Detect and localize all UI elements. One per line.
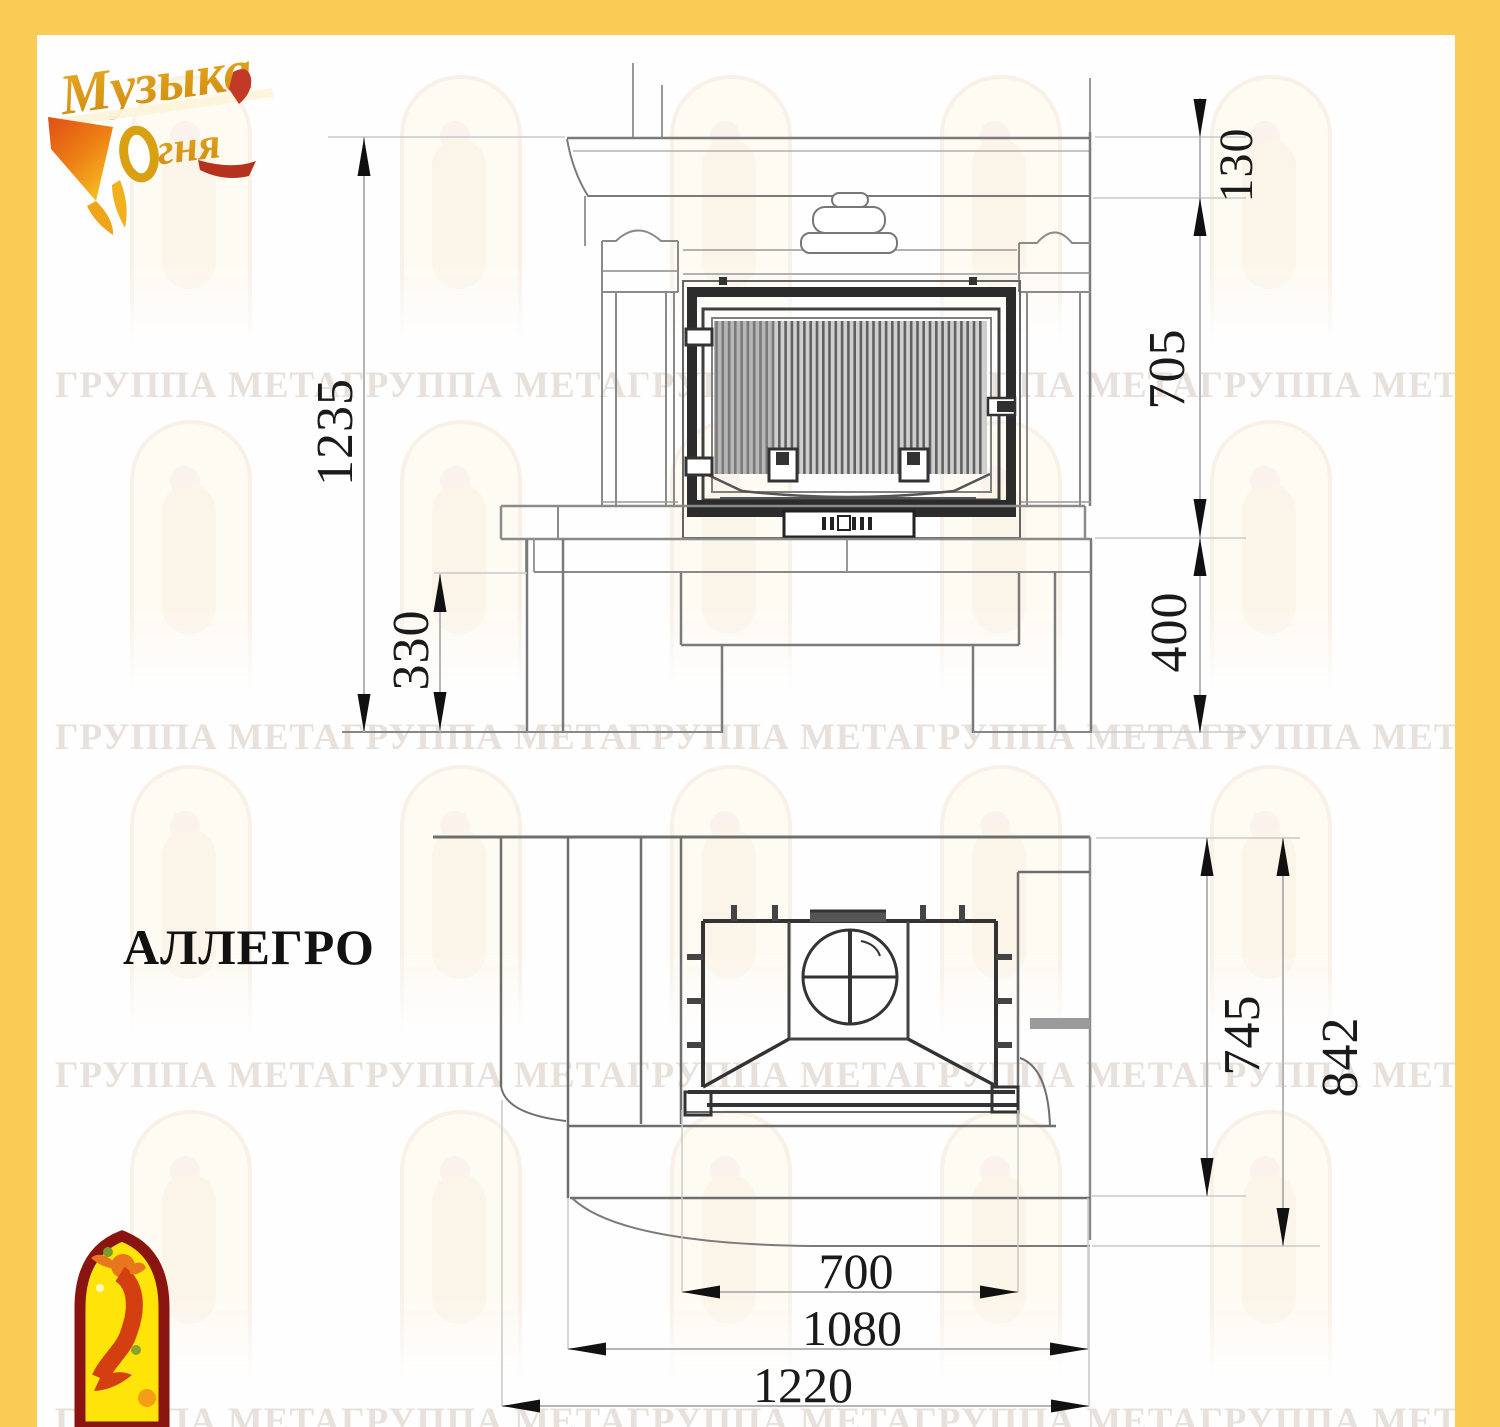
svg-text:1235: 1235 bbox=[307, 378, 364, 486]
svg-text:400: 400 bbox=[1141, 592, 1198, 673]
svg-text:705: 705 bbox=[1139, 329, 1196, 410]
svg-text:АЛЛЕГРО: АЛЛЕГРО bbox=[123, 919, 375, 975]
svg-text:745: 745 bbox=[1214, 995, 1271, 1076]
svg-text:1080: 1080 bbox=[802, 1300, 902, 1356]
svg-text:1220: 1220 bbox=[753, 1357, 853, 1413]
svg-text:330: 330 bbox=[383, 610, 440, 691]
svg-text:842: 842 bbox=[1312, 1017, 1369, 1098]
svg-text:130: 130 bbox=[1210, 128, 1263, 203]
svg-text:700: 700 bbox=[819, 1243, 894, 1299]
svg-text:Музыка: Музыка bbox=[55, 38, 256, 127]
